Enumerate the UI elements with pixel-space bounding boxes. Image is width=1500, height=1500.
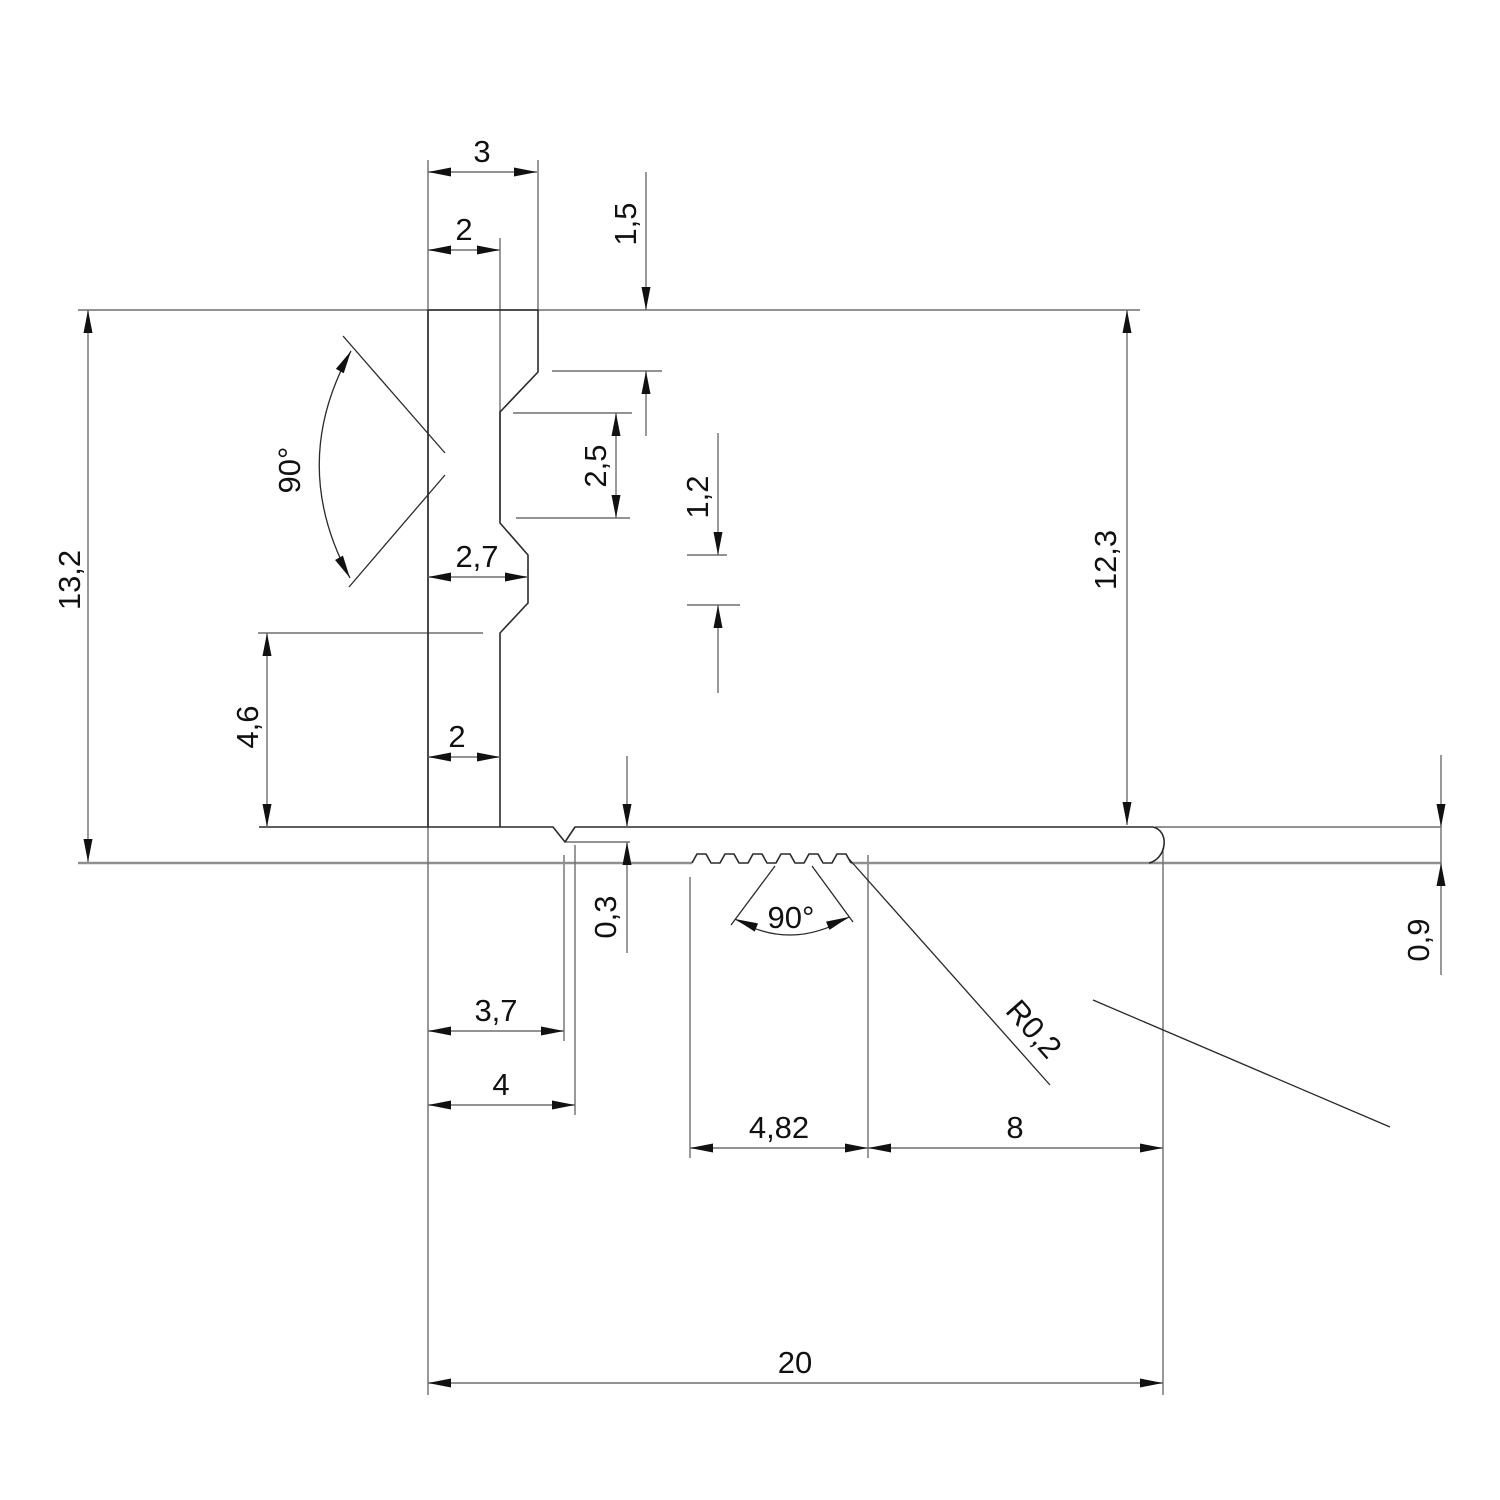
dim-label-width-2-7: 2,7 [455, 539, 498, 574]
dim-label-height-1-2: 1,2 [680, 475, 715, 518]
dim-label-width-3: 3 [473, 134, 490, 169]
dim-label-width-2-top: 2 [455, 212, 472, 247]
dim-label-height-0-3: 0,3 [588, 895, 623, 938]
dim-label-height-1-5: 1,5 [608, 202, 643, 245]
dim-label-width-3-7: 3,7 [474, 993, 517, 1028]
dim-label-width-8: 8 [1006, 1110, 1023, 1145]
dim-label-width-2-bottom: 2 [448, 719, 465, 754]
dim-label-width-20: 20 [778, 1345, 812, 1380]
angle-label-wall-90: 90° [272, 447, 307, 494]
angle-label-ribs-90: 90° [768, 900, 815, 935]
dim-label-width-4: 4 [492, 1067, 509, 1102]
dim-label-height-2-5: 2,5 [578, 444, 613, 487]
dim-label-height-0-9: 0,9 [1401, 918, 1436, 961]
technical-drawing-canvas: 3 2 1,5 2,5 1,2 2,7 90° 13,2 4,6 2 12,3 … [0, 0, 1500, 1500]
drawing-background [0, 0, 1500, 1500]
dim-label-height-13-2: 13,2 [52, 550, 87, 610]
dim-label-height-4-6: 4,6 [230, 705, 265, 748]
dim-label-width-4-82: 4,82 [749, 1110, 809, 1145]
dim-label-height-12-3: 12,3 [1088, 530, 1123, 590]
